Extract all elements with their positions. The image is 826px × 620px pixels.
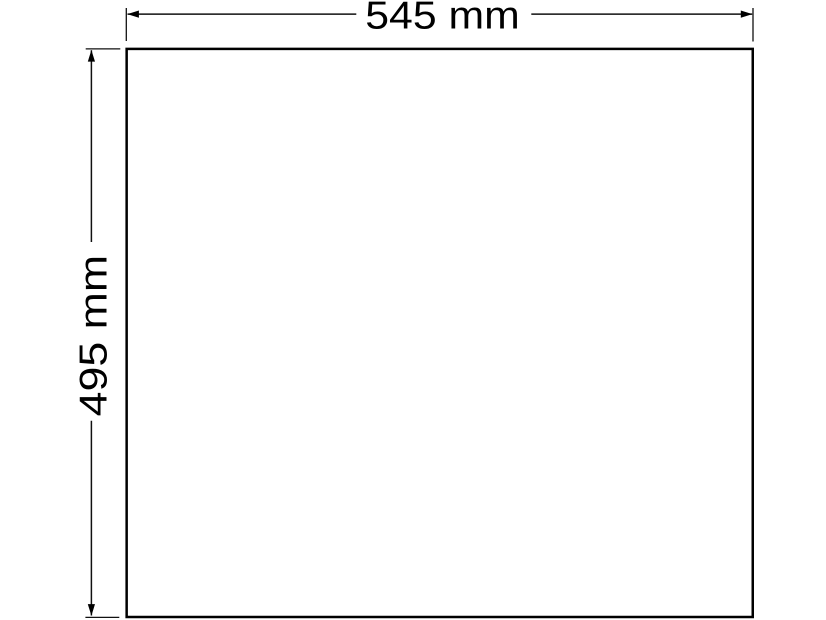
svg-text:545 mm: 545 mm <box>365 0 520 38</box>
svg-text:495 mm: 495 mm <box>73 255 116 417</box>
